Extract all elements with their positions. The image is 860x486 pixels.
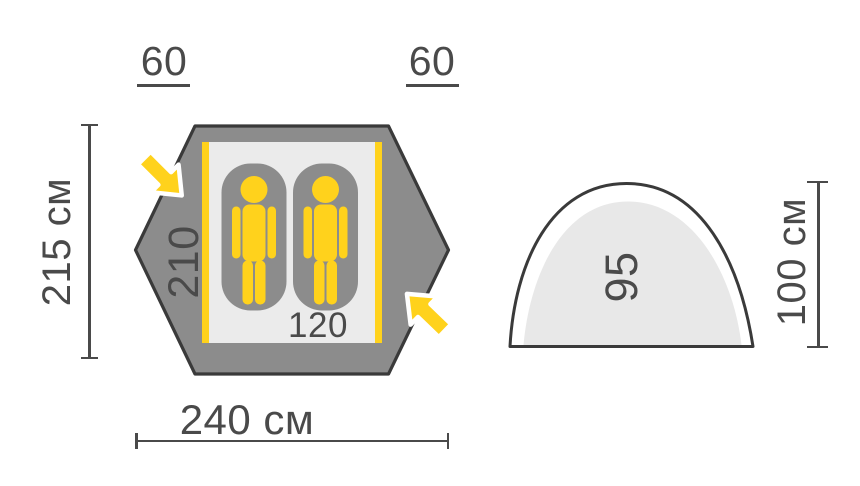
outer-width-dimension-cap-right: [447, 433, 450, 449]
outer-width-label: 240 см: [137, 399, 357, 441]
outer-height-label: 215 см: [36, 157, 78, 327]
inner-length-label: 210: [162, 207, 206, 317]
sleeping-bag-icon: [293, 164, 358, 311]
vestibule-left-underline: [137, 84, 190, 87]
side-height-dimension-line: [817, 182, 820, 347]
floor-stripe-right: [375, 142, 382, 343]
outer-width-dimension-cap-left: [135, 433, 138, 449]
tent-dimensions-diagram: 60 60 215 см: [0, 0, 860, 486]
sleeping-bag-icon: [222, 164, 287, 311]
vestibule-right-underline: [406, 84, 459, 87]
side-height-label: 100 см: [771, 177, 813, 347]
outer-height-dimension-cap-bottom: [81, 357, 98, 359]
side-inner-height-label: 95: [599, 222, 645, 332]
vestibule-right-label: 60: [405, 40, 459, 82]
outer-height-dimension-cap-top: [81, 124, 98, 126]
outer-width-dimension-line: [136, 440, 448, 443]
inner-width-label: 120: [268, 308, 368, 344]
outer-height-dimension-line: [88, 125, 91, 358]
vestibule-left-label: 60: [137, 40, 191, 82]
